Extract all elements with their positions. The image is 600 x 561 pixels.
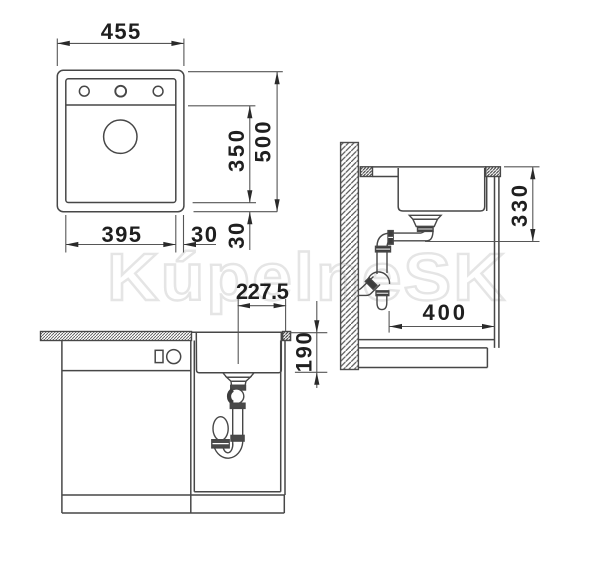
- svg-text:455: 455: [101, 19, 141, 44]
- svg-text:30: 30: [191, 222, 217, 247]
- svg-text:395: 395: [102, 222, 142, 247]
- svg-text:500: 500: [251, 122, 276, 163]
- svg-text:30: 30: [224, 223, 249, 249]
- svg-text:350: 350: [224, 130, 249, 172]
- svg-text:227.5: 227.5: [236, 279, 289, 304]
- svg-text:190: 190: [292, 332, 317, 372]
- svg-text:330: 330: [507, 185, 532, 227]
- svg-text:400: 400: [422, 300, 465, 325]
